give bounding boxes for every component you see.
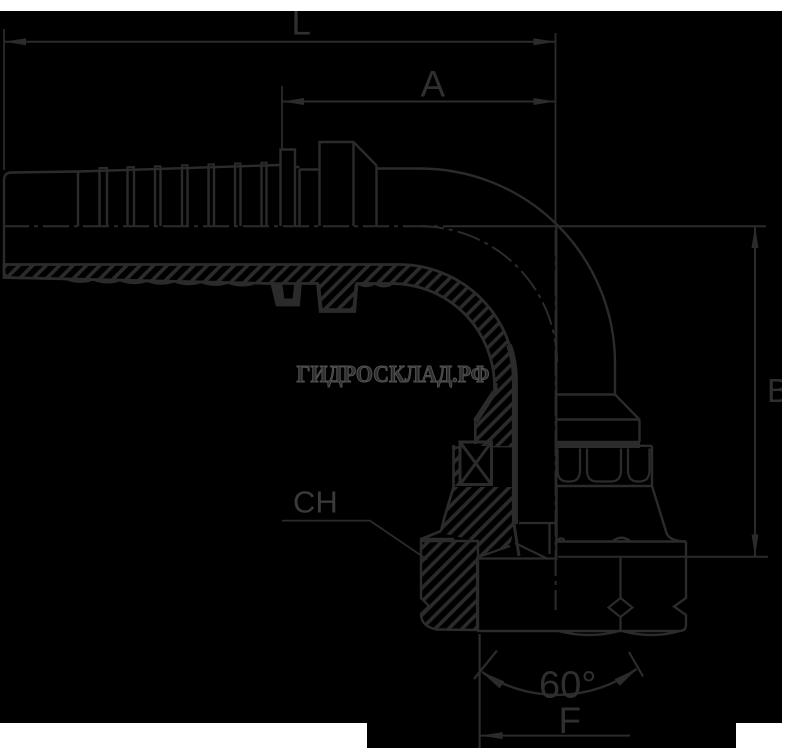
svg-text:F: F — [559, 700, 582, 741]
svg-text:CH: CH — [293, 485, 338, 520]
svg-text:ГИДРОСКЛАД.РФ: ГИДРОСКЛАД.РФ — [297, 362, 490, 388]
svg-text:A: A — [421, 64, 446, 105]
